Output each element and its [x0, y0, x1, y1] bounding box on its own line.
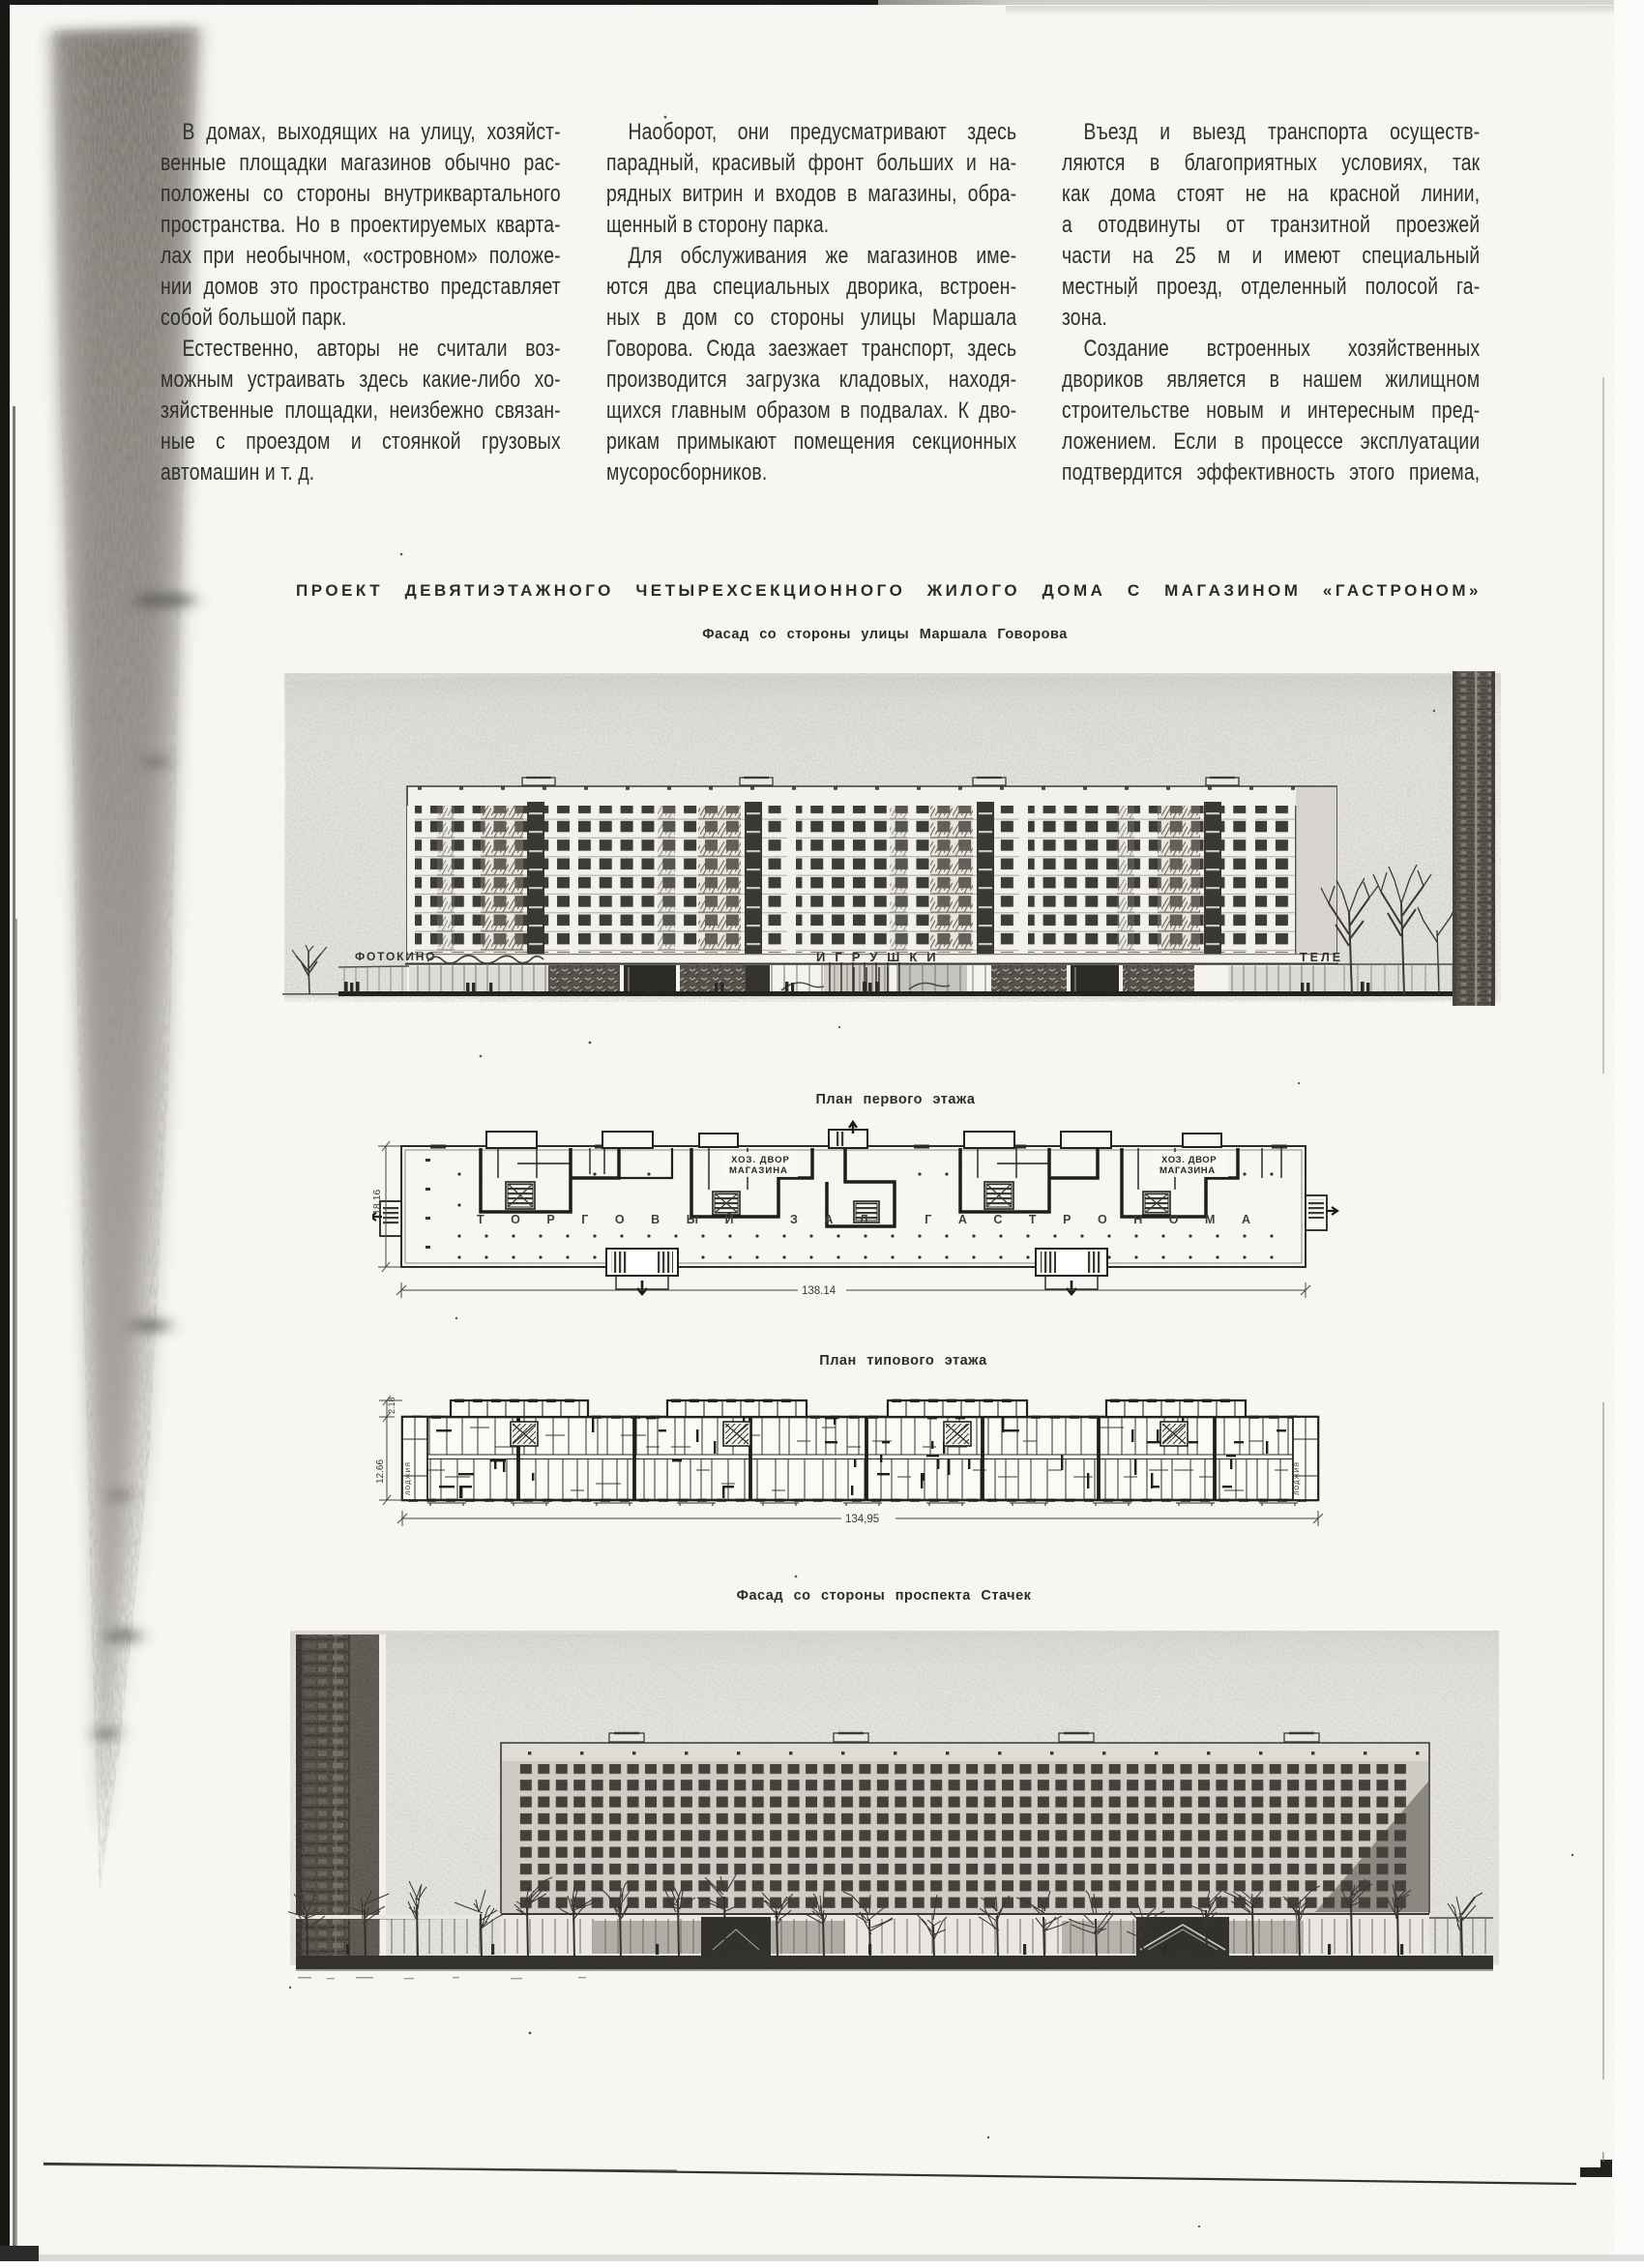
svg-text:ИГРУШКИ: ИГРУШКИ: [816, 950, 946, 964]
svg-text:134,95: 134,95: [845, 1514, 879, 1525]
svg-text:ЛОДЖИЯ: ЛОДЖИЯ: [405, 1461, 412, 1495]
svg-text:12.66: 12.66: [375, 1459, 386, 1484]
svg-text:ФОТОКИНО: ФОТОКИНО: [355, 950, 436, 963]
svg-text:ТЕЛЕ: ТЕЛЕ: [1300, 951, 1343, 964]
svg-text:ХОЗ. ДВОР: ХОЗ. ДВОР: [731, 1155, 790, 1165]
svg-text:138.14: 138.14: [802, 1285, 837, 1297]
svg-text:ХОЗ. ДВОР: ХОЗ. ДВОР: [1161, 1155, 1217, 1165]
svg-text:МАГАЗИНА: МАГАЗИНА: [729, 1165, 788, 1176]
svg-text:ЛОДЖИЯ: ЛОДЖИЯ: [1294, 1461, 1301, 1495]
svg-text:МАГАЗИНА: МАГАЗИНА: [1160, 1165, 1216, 1176]
svg-text:2.18: 2.18: [387, 1397, 396, 1414]
svg-text:18.16: 18.16: [372, 1190, 383, 1215]
svg-text:Т О Р Г О В Ы Й З А Л Г А: Т О Р Г О В Ы Й З А Л Г А С Т Р О Н О М …: [477, 1212, 1250, 1226]
